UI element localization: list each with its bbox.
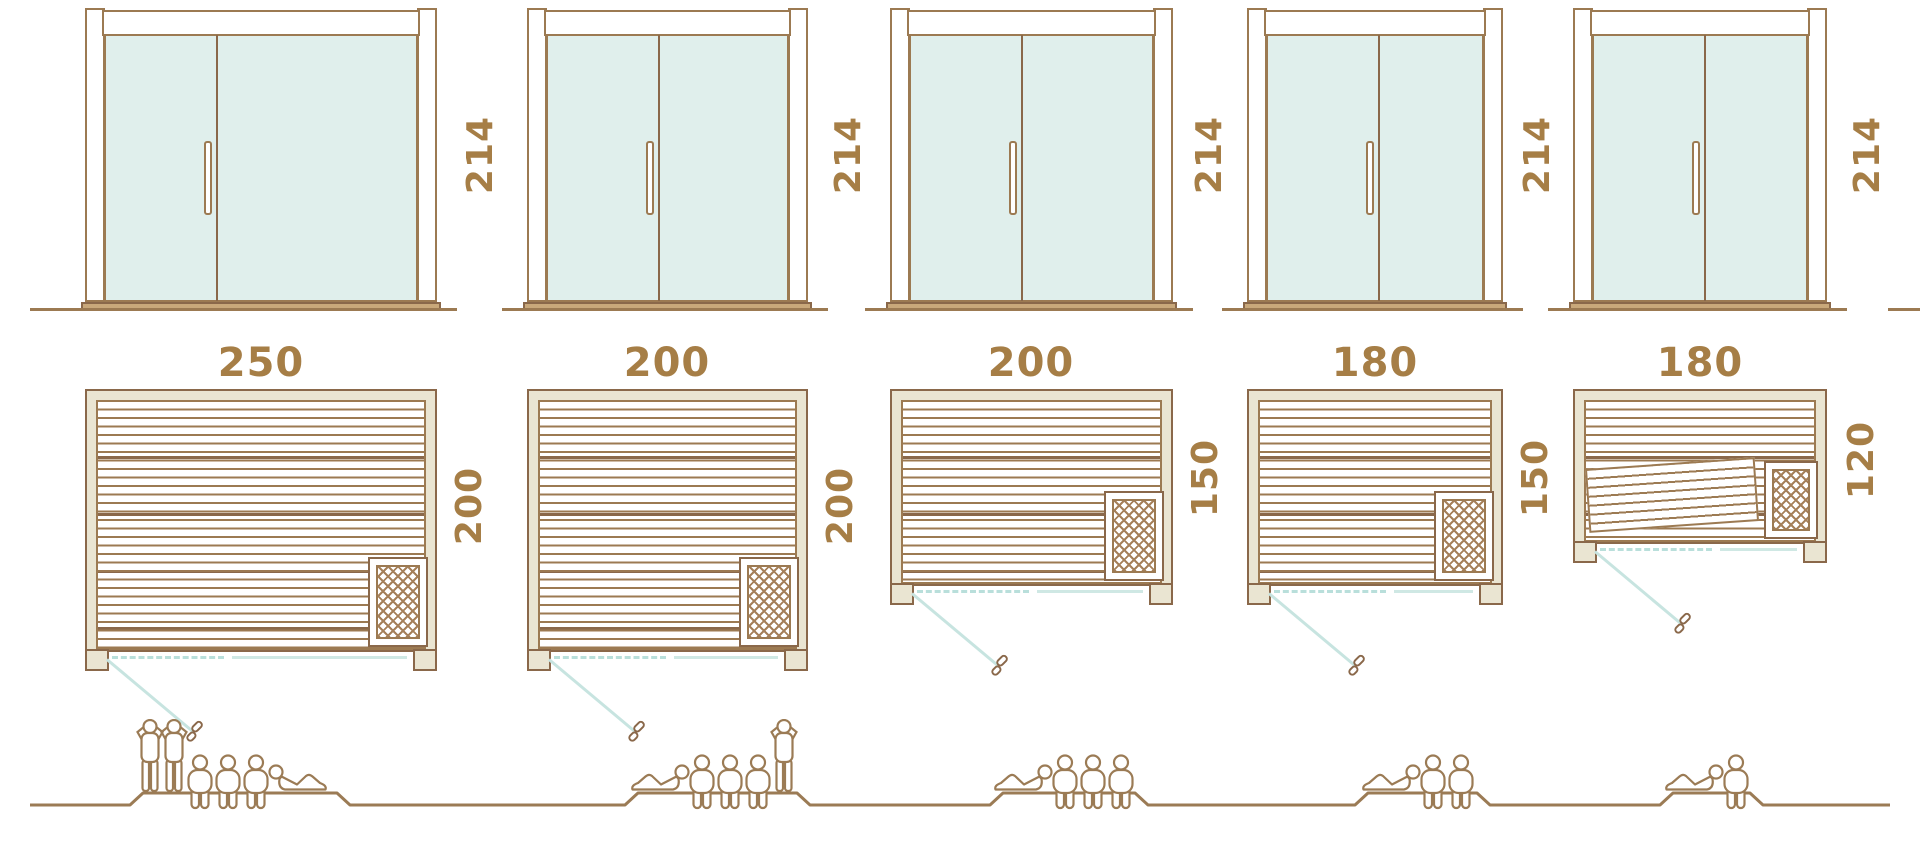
floor-plan-4 xyxy=(1247,389,1503,601)
door-elevation-3 xyxy=(890,8,1173,310)
door-opening-dashed-line xyxy=(1274,590,1386,593)
door-lintel xyxy=(544,10,791,36)
capacity-group-2 xyxy=(611,722,813,812)
heater xyxy=(1434,491,1494,581)
door-swing-line xyxy=(1268,592,1357,668)
plan-depth-label-1: 200 xyxy=(448,446,492,566)
capacity-group-4 xyxy=(1346,722,1488,812)
door-swing-line xyxy=(911,592,1000,668)
door-elevation-5 xyxy=(1573,8,1827,310)
heater xyxy=(1104,491,1164,581)
ground-line xyxy=(30,308,457,311)
door-height-label-1: 214 xyxy=(459,95,503,215)
door-elevation-1 xyxy=(85,8,437,310)
fixed-panel-line xyxy=(1037,590,1143,593)
person-lying-icon xyxy=(267,763,333,793)
heater xyxy=(739,557,799,647)
plan-width-label-3: 200 xyxy=(951,340,1111,386)
door-elevation-2 xyxy=(527,8,808,310)
person-standing-icon xyxy=(769,719,799,793)
capacity-group-1 xyxy=(118,722,350,812)
heater-lattice xyxy=(376,565,420,639)
door-height-label-4: 214 xyxy=(1516,95,1560,215)
person-lying-icon xyxy=(1659,763,1725,793)
door-elevation-4 xyxy=(1247,8,1503,310)
door-right-post xyxy=(1483,8,1503,302)
door-height-label-5: 214 xyxy=(1846,95,1890,215)
fixed-panel-line xyxy=(1394,590,1473,593)
door-leaf-divider xyxy=(1378,35,1380,301)
door-handle xyxy=(1366,141,1374,215)
door-glass xyxy=(104,34,418,302)
door-leaf-divider xyxy=(1021,35,1023,301)
wall-stub-right xyxy=(1803,541,1827,563)
door-opening-dashed-line xyxy=(917,590,1029,593)
plan-width-label-1: 250 xyxy=(181,340,341,386)
door-opening-dashed-line xyxy=(1600,548,1712,551)
door-handle xyxy=(1009,141,1017,215)
plan-door-handle-icon xyxy=(1666,606,1703,643)
ground-line xyxy=(865,308,1193,311)
plan-width-label-5: 180 xyxy=(1620,340,1780,386)
plan-width-label-4: 180 xyxy=(1295,340,1455,386)
ground-line xyxy=(1222,308,1523,311)
door-lintel xyxy=(907,10,1156,36)
capacity-group-5 xyxy=(1652,722,1760,812)
ground-line xyxy=(1888,308,1920,311)
door-right-post xyxy=(1153,8,1173,302)
person-seated-icon xyxy=(1719,754,1753,810)
angled-bench xyxy=(1585,457,1759,533)
person-lying-icon xyxy=(625,763,691,793)
plan-door-handle-icon xyxy=(983,648,1020,685)
floor-plan-1 xyxy=(85,389,437,667)
door-leaf-divider xyxy=(1704,35,1706,301)
door-leaf-divider xyxy=(216,35,218,301)
door-lintel xyxy=(1590,10,1810,36)
sauna-size-diagram: 214 214 214 214 214 250 200 200 180 180 xyxy=(0,0,1920,843)
person-seated-icon xyxy=(1444,754,1478,810)
heater-lattice xyxy=(1112,499,1156,573)
door-height-label-2: 214 xyxy=(827,95,871,215)
door-lintel xyxy=(102,10,420,36)
door-left-post xyxy=(890,8,910,302)
door-left-post xyxy=(1247,8,1267,302)
heater-lattice xyxy=(747,565,791,639)
fixed-panel-line xyxy=(674,656,778,659)
door-right-post xyxy=(417,8,437,302)
door-glass xyxy=(1266,34,1484,302)
plan-width-label-2: 200 xyxy=(587,340,747,386)
heater xyxy=(1764,461,1818,539)
plan-depth-label-4: 150 xyxy=(1514,418,1558,538)
door-left-post xyxy=(1573,8,1593,302)
floor-plan-3 xyxy=(890,389,1173,601)
fixed-panel-line xyxy=(232,656,407,659)
door-leaf-divider xyxy=(658,35,660,301)
heater xyxy=(368,557,428,647)
door-opening-dashed-line xyxy=(112,656,224,659)
door-glass xyxy=(909,34,1154,302)
door-left-post xyxy=(527,8,547,302)
wall-stub-right xyxy=(784,649,808,671)
heater-lattice xyxy=(1442,499,1486,573)
person-seated-icon xyxy=(1104,754,1138,810)
door-opening-dashed-line xyxy=(554,656,666,659)
door-glass xyxy=(1592,34,1808,302)
plan-depth-label-3: 150 xyxy=(1184,418,1228,538)
plan-door-handle-icon xyxy=(1340,648,1377,685)
door-handle xyxy=(646,141,654,215)
plan-depth-label-5: 120 xyxy=(1840,400,1884,520)
door-swing-line xyxy=(1594,550,1683,626)
wall-stub-right xyxy=(413,649,437,671)
door-handle xyxy=(204,141,212,215)
door-glass xyxy=(546,34,789,302)
wall-stub-right xyxy=(1149,583,1173,605)
floor-plan-2 xyxy=(527,389,808,667)
floor-plan-5 xyxy=(1573,389,1827,559)
fixed-panel-line xyxy=(1720,548,1797,551)
heater-lattice xyxy=(1772,469,1810,531)
wall-stub-right xyxy=(1479,583,1503,605)
ground-line xyxy=(1548,308,1847,311)
plan-depth-label-2: 200 xyxy=(819,446,863,566)
person-lying-icon xyxy=(988,763,1054,793)
door-right-post xyxy=(1807,8,1827,302)
door-left-post xyxy=(85,8,105,302)
ground-line xyxy=(502,308,828,311)
door-height-label-3: 214 xyxy=(1188,95,1232,215)
door-handle xyxy=(1692,141,1700,215)
person-lying-icon xyxy=(1356,763,1422,793)
capacity-group-3 xyxy=(977,722,1149,812)
door-right-post xyxy=(788,8,808,302)
door-lintel xyxy=(1264,10,1486,36)
